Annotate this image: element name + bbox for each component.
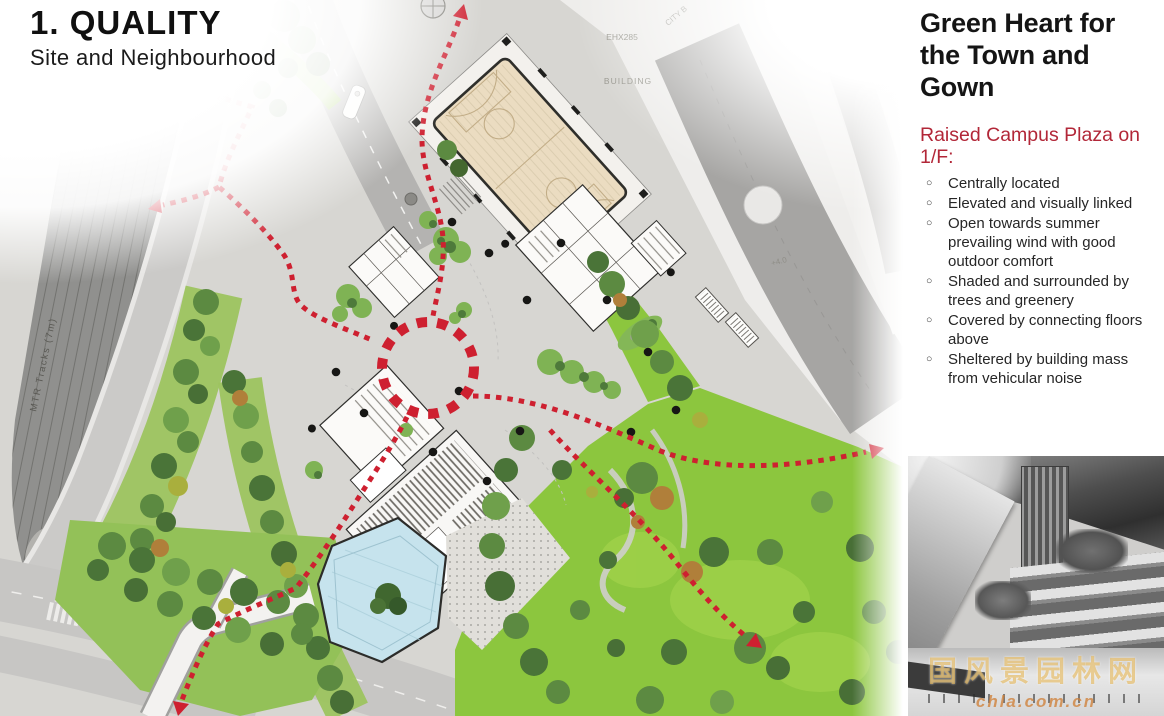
- bullet-list: ○Centrally located ○Elevated and visuall…: [920, 174, 1154, 389]
- rendering-terrace-trees: [1056, 529, 1128, 573]
- bullet-marker: ○: [920, 214, 948, 271]
- bullet-item: ○Elevated and visually linked: [920, 194, 1154, 213]
- sidebar-subheading: Raised Campus Plaza on 1/F:: [920, 124, 1152, 169]
- title-block: 1. QUALITY Site and Neighbourhood: [30, 4, 276, 71]
- page-subtitle: Site and Neighbourhood: [30, 45, 276, 71]
- bullet-text: Sheltered by building mass from vehicula…: [948, 350, 1154, 388]
- site-plan-map: MTR Tracks (7m) EHX285 BUILDING CITY B +…: [0, 0, 905, 716]
- helipad-mark: [421, 0, 445, 18]
- sidebar-heading: Green Heart for the Town and Gown: [920, 8, 1152, 104]
- plaza-gray-dot: [405, 193, 417, 205]
- bullet-text: Open towards summer prevailing wind with…: [948, 214, 1154, 271]
- watermark-text: 国风景园林网: [908, 648, 1164, 690]
- building-label: BUILDING: [604, 76, 652, 86]
- site-plan-svg: MTR Tracks (7m) EHX285 BUILDING CITY B +…: [0, 0, 905, 716]
- lot-label: EHX285: [606, 32, 638, 42]
- bullet-marker: ○: [920, 174, 948, 193]
- bullet-text: Shaded and surrounded by trees and green…: [948, 272, 1154, 310]
- bullet-marker: ○: [920, 194, 948, 213]
- bullet-item: ○Sheltered by building mass from vehicul…: [920, 350, 1154, 388]
- atrium-rendering-photo: 国风景园林网 chla.com.cn: [908, 456, 1164, 716]
- bullet-marker: ○: [920, 350, 948, 388]
- rendering-trees: [975, 581, 1031, 620]
- bullet-text: Centrally located: [948, 174, 1060, 193]
- roundabout-circle: [744, 186, 782, 224]
- bullet-text: Covered by connecting floors above: [948, 311, 1154, 349]
- bullet-text: Elevated and visually linked: [948, 194, 1132, 213]
- bullet-marker: ○: [920, 311, 948, 349]
- bullet-item: ○Open towards summer prevailing wind wit…: [920, 214, 1154, 271]
- page-title: 1. QUALITY: [30, 4, 276, 42]
- watermark-url: chla.com.cn: [908, 692, 1164, 712]
- bullet-item: ○Centrally located: [920, 174, 1154, 193]
- bullet-item: ○Shaded and surrounded by trees and gree…: [920, 272, 1154, 310]
- bullet-item: ○Covered by connecting floors above: [920, 311, 1154, 349]
- presentation-slide: MTR Tracks (7m) EHX285 BUILDING CITY B +…: [0, 0, 1164, 716]
- bullet-marker: ○: [920, 272, 948, 310]
